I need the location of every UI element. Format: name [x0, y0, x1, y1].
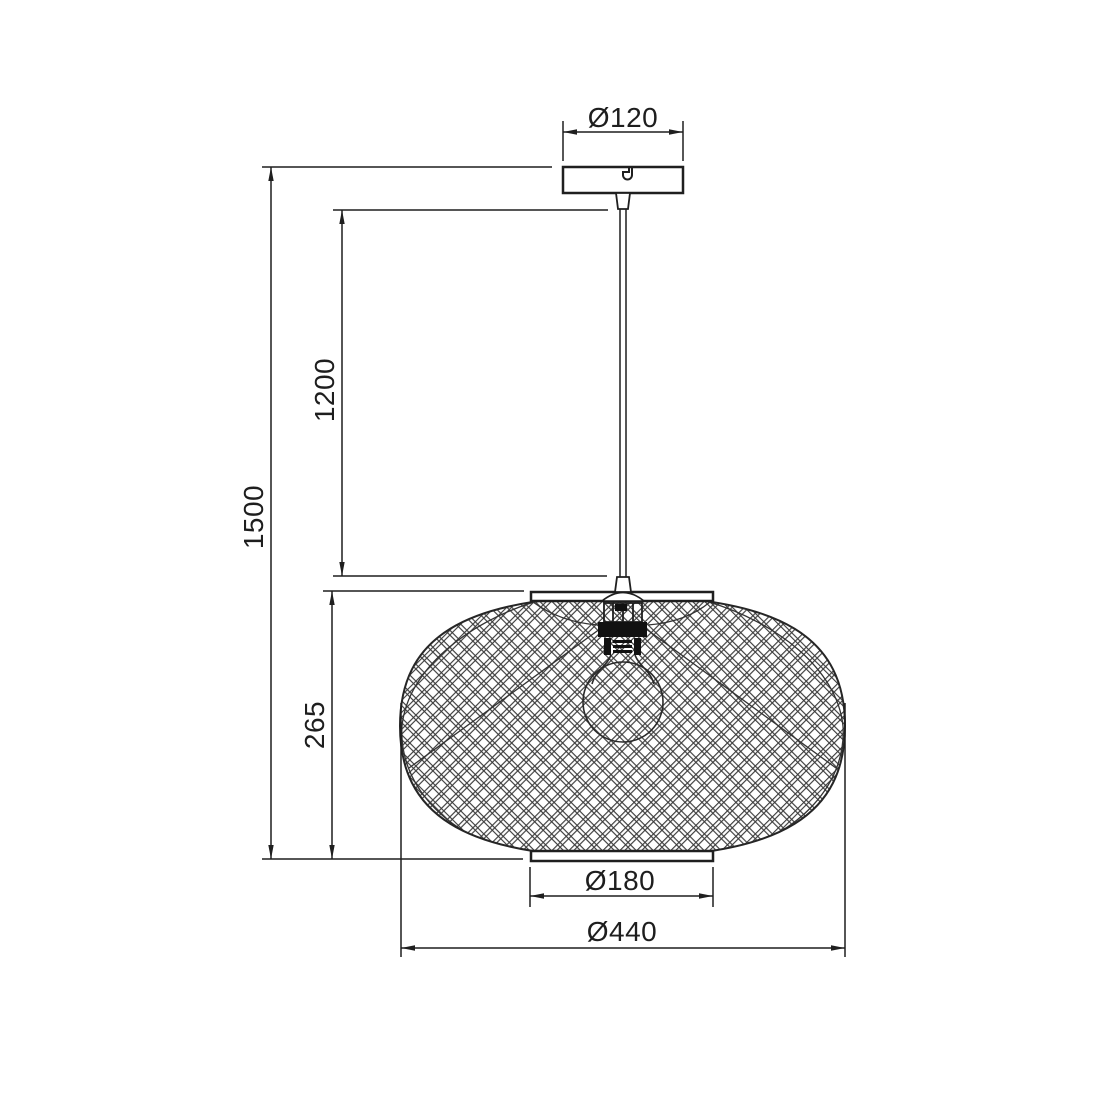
dim-label-suspension-length: 1200 [309, 358, 340, 422]
drawing-background [0, 0, 1100, 1100]
socket-thread-stripe [613, 640, 632, 643]
pendant-lamp-drawing: Ø120 1500 1200 265 Ø180 [0, 0, 1100, 1100]
dim-label-shade-diameter: Ø440 [587, 916, 658, 947]
rod-connector-bottom [615, 577, 631, 592]
socket-band [598, 622, 647, 637]
dim-label-shade-height: 265 [299, 701, 330, 749]
rod-connector-top [616, 193, 630, 209]
dim-label-canopy-diameter: Ø120 [588, 102, 659, 133]
cage-clip [615, 604, 627, 611]
socket-thread-left [604, 638, 611, 655]
dim-label-overall-height: 1500 [238, 485, 269, 549]
dim-label-bottom-ring-diameter: Ø180 [585, 865, 656, 896]
ceiling-canopy [563, 167, 683, 193]
socket-thread-right [634, 638, 641, 655]
drawing-canvas: Ø120 1500 1200 265 Ø180 [0, 0, 1100, 1100]
socket-thread-stripe [613, 650, 632, 653]
shade-bottom-ring [531, 851, 713, 861]
socket-thread-stripe [613, 645, 632, 648]
